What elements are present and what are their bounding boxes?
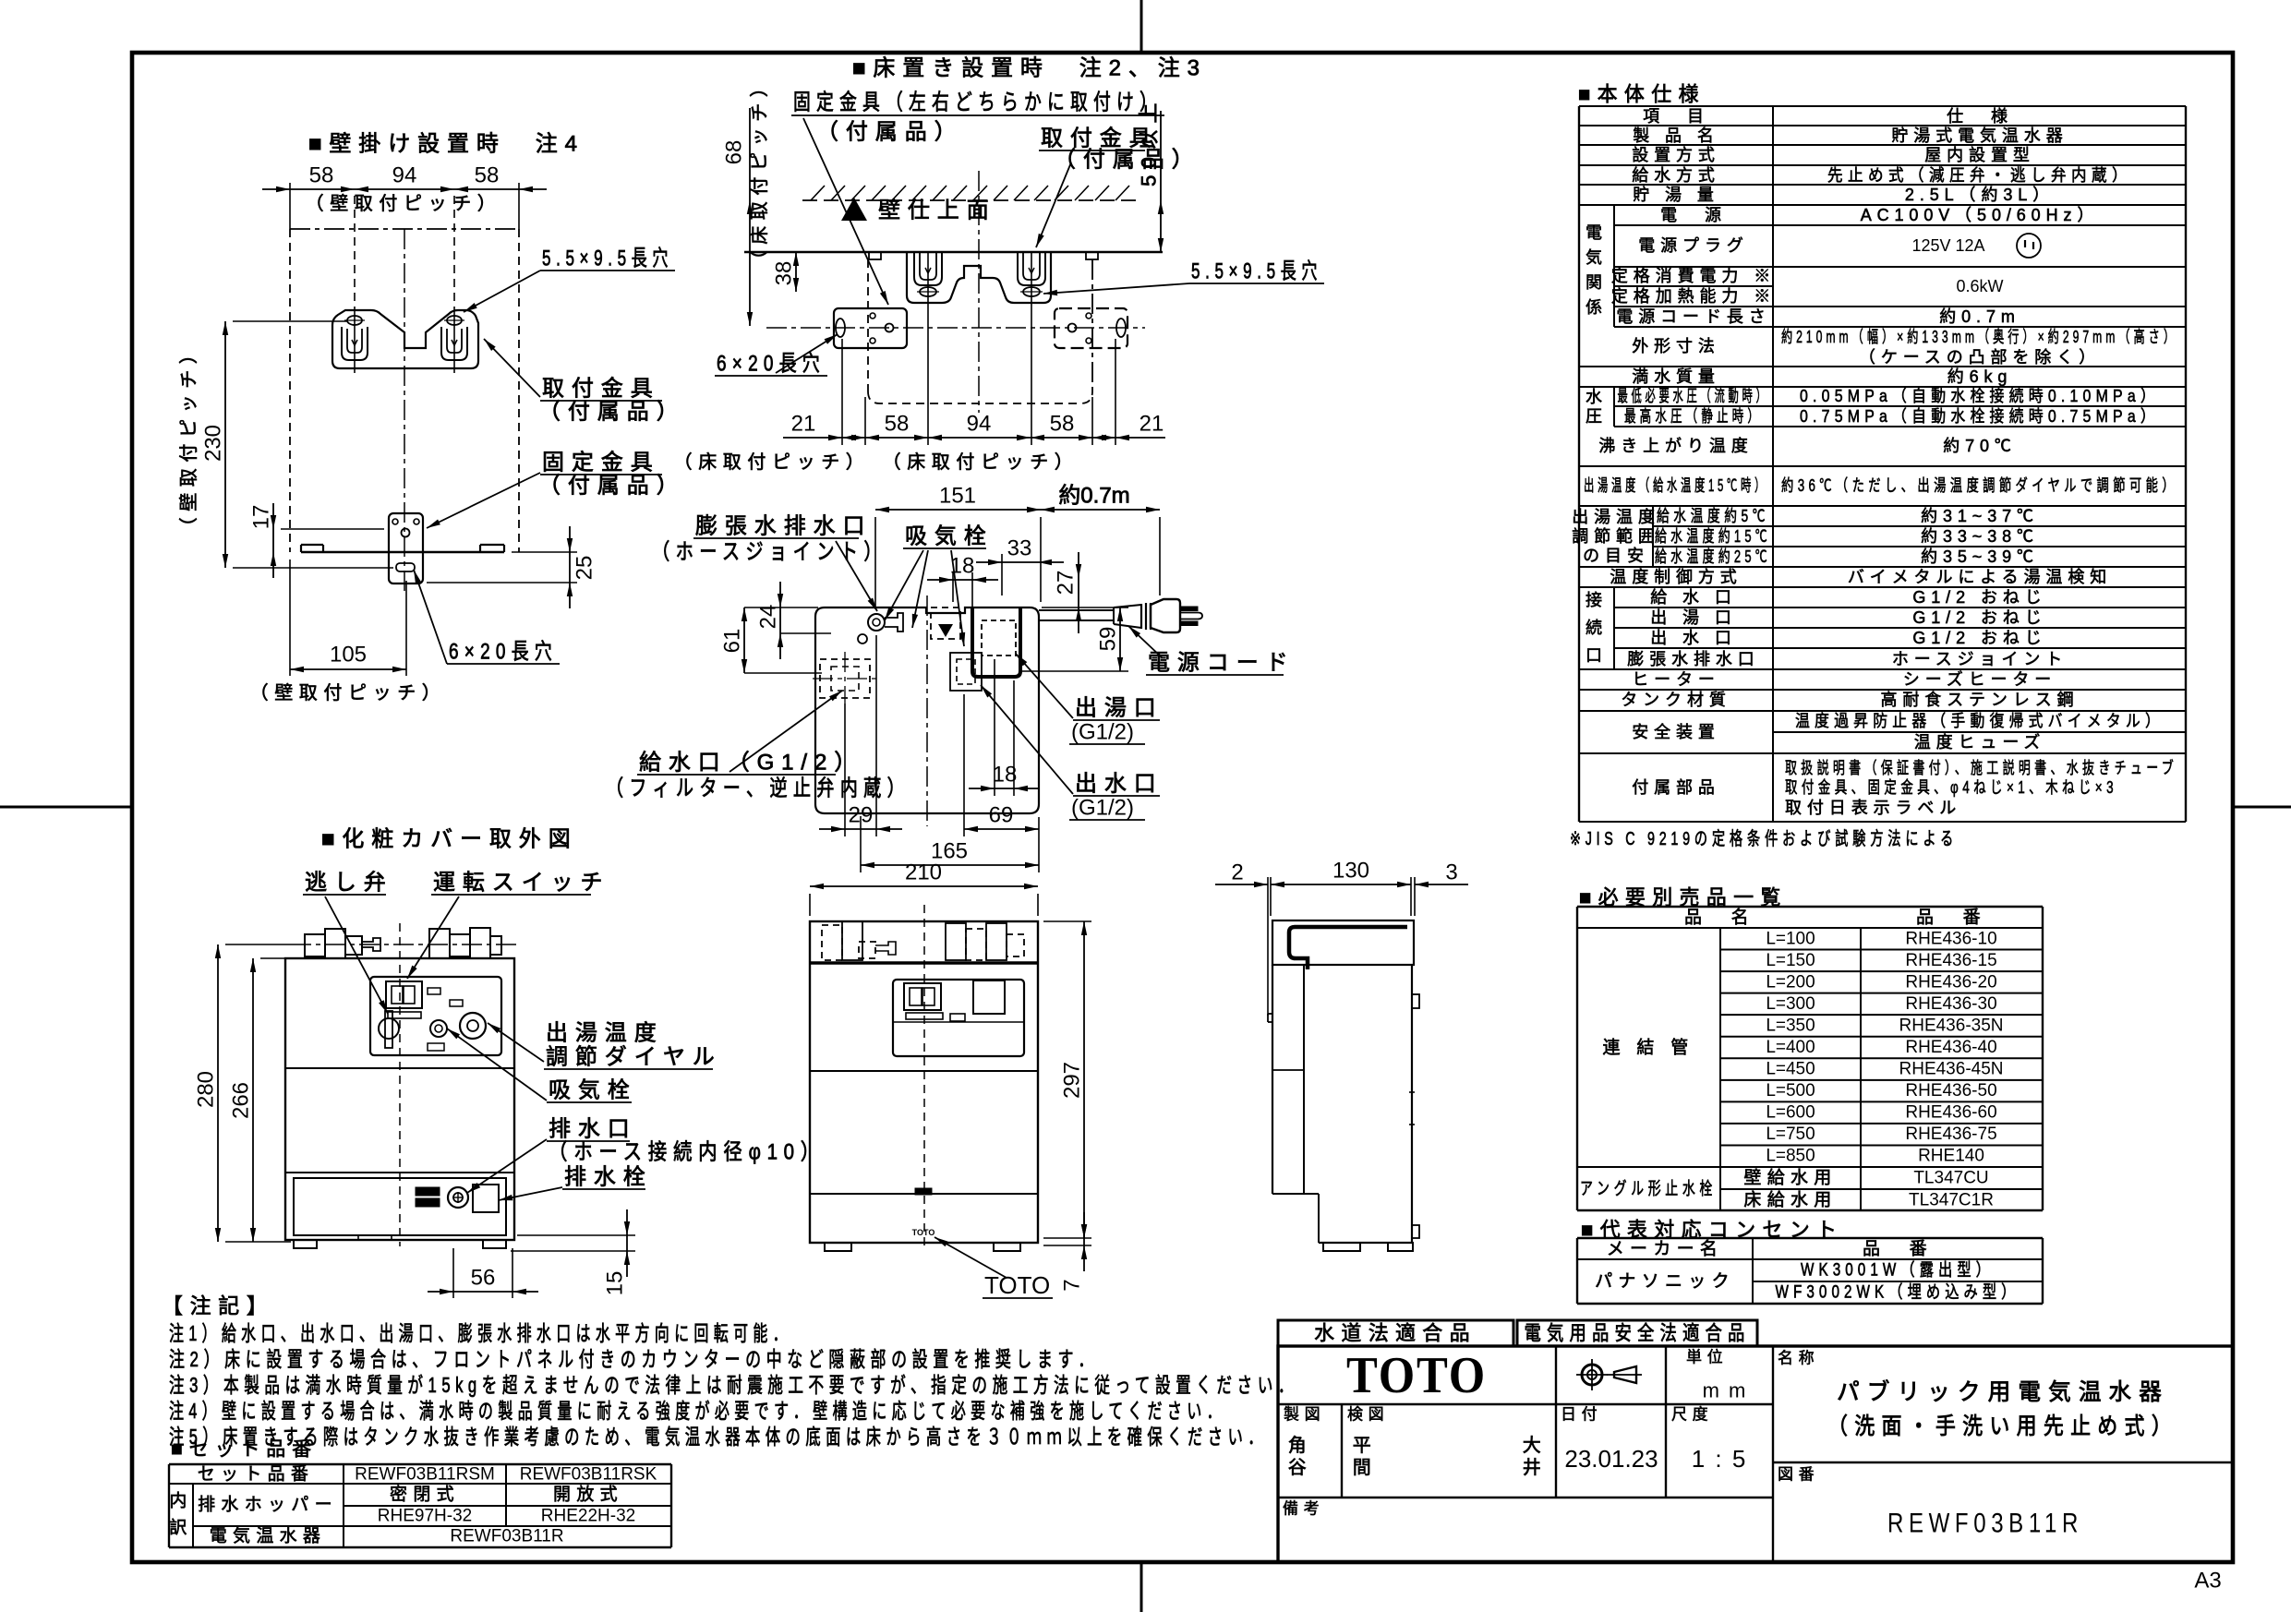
svg-text:水: 水 [1586,388,1608,406]
svg-text:安全装置: 安全装置 [1632,723,1720,741]
svg-text:94: 94 [392,163,417,188]
svg-text:TOTO: TOTO [1346,1347,1487,1404]
svg-text:69: 69 [989,803,1014,828]
svg-text:5.5×9.5長穴: 5.5×9.5長穴 [1191,259,1322,284]
svg-text:屋内設置型: 屋内設置型 [1924,146,2035,164]
svg-text:m m: m m [1703,1379,1748,1402]
svg-text:REWF03B11R: REWF03B11R [450,1527,563,1546]
svg-text:接: 接 [1586,591,1608,609]
svg-text:TL347CU: TL347CU [1913,1169,1988,1188]
svg-text:約6kg: 約6kg [1947,367,2013,386]
svg-text:210: 210 [905,860,942,885]
svg-text:角: 角 [1288,1435,1313,1456]
svg-text:約70℃: 約70℃ [1943,437,2017,455]
svg-text:温度制御方式: 温度制御方式 [1610,568,1742,586]
svg-text:約210mm（幅）×約133mm（奥行）×約297mm（高さ: 約210mm（幅）×約133mm（奥行）×約297mm（高さ） [1781,328,2178,346]
svg-text:（床取付ピッチ）: （床取付ピッチ） [749,73,770,270]
svg-text:仕 様: 仕 様 [1947,107,2013,126]
svg-text:15: 15 [603,1271,628,1296]
svg-text:L=150: L=150 [1766,951,1815,970]
svg-text:給水温度約15℃: 給水温度約15℃ [1655,527,1771,546]
svg-text:電源コード長さ: 電源コード長さ [1616,307,1770,326]
svg-text:RHE436-10: RHE436-10 [1905,929,1996,948]
svg-text:50以上: 50以上 [1138,96,1161,186]
svg-text:(G1/2): (G1/2) [1071,720,1134,745]
svg-text:備考: 備考 [1283,1500,1324,1518]
svg-text:出湯温度: 出湯温度 [1572,508,1660,526]
svg-text:注2）床に設置する場合は、フロントパネル付きのカウンターの中: 注2）床に設置する場合は、フロントパネル付きのカウンターの中など隠蔽部の設置を推… [169,1347,1099,1371]
svg-text:最高水圧（静止時）: 最高水圧（静止時） [1624,407,1763,426]
svg-text:約0.7m: 約0.7m [1939,307,2020,326]
svg-text:電気温水器: 電気温水器 [210,1526,327,1546]
svg-text:開放式: 開放式 [553,1485,623,1505]
svg-text:6×20長穴: 6×20長穴 [449,640,558,665]
svg-text:訳: 訳 [169,1518,192,1538]
svg-text:井: 井 [1523,1457,1548,1478]
svg-text:6×20長穴: 6×20長穴 [717,352,826,377]
svg-text:2.5L（約3L）: 2.5L（約3L） [1905,186,2055,204]
svg-text:出湯温度（給水温度15℃時）: 出湯温度（給水温度15℃時） [1584,476,1768,495]
svg-text:RHE436-60: RHE436-60 [1905,1103,1996,1123]
svg-text:電気用品安全法適合品: 電気用品安全法適合品 [1525,1322,1751,1345]
svg-text:（床取付ピッチ）: （床取付ピッチ） [674,451,871,473]
svg-text:取扱説明書（保証書付）、施工説明書、水抜きチューブ: 取扱説明書（保証書付）、施工説明書、水抜きチューブ [1785,758,2177,777]
svg-text:L=400: L=400 [1766,1038,1815,1057]
svg-text:33: 33 [1007,536,1032,561]
svg-text:日付: 日付 [1561,1406,1602,1424]
svg-text:（付属品）: （付属品） [538,400,686,425]
svg-text:外形寸法: 外形寸法 [1632,337,1720,355]
svg-text:L=600: L=600 [1766,1103,1815,1123]
svg-text:取付日表示ラベル: 取付日表示ラベル [1785,799,1961,817]
svg-text:105: 105 [330,643,367,668]
svg-text:TOTO: TOTO [912,1228,935,1237]
svg-text:続: 続 [1586,619,1608,637]
svg-text:給水温度約25℃: 給水温度約25℃ [1655,547,1771,566]
svg-text:0.75MPa（自動水栓接続時0.75MPa）: 0.75MPa（自動水栓接続時0.75MPa） [1800,407,2160,426]
svg-text:61: 61 [720,629,745,654]
svg-text:アングル形止水栓: アングル形止水栓 [1580,1179,1717,1199]
svg-text:品 番: 品 番 [1863,1239,1933,1259]
svg-text:L=200: L=200 [1766,972,1815,992]
svg-text:RHE436-50: RHE436-50 [1905,1081,1996,1101]
svg-text:L=500: L=500 [1766,1081,1815,1101]
svg-text:吸気栓: 吸気栓 [549,1078,637,1103]
svg-text:検図: 検図 [1347,1406,1389,1424]
svg-text:18: 18 [950,554,975,579]
svg-text:高耐食ステンレス鋼: 高耐食ステンレス鋼 [1880,691,2079,709]
svg-text:運転スイッチ: 運転スイッチ [433,871,609,896]
svg-text:151: 151 [939,484,976,509]
svg-text:（フィルター、逆止弁内蔵）: （フィルター、逆止弁内蔵） [606,776,910,801]
svg-text:温度過昇防止器（手動復帰式バイメタル）: 温度過昇防止器（手動復帰式バイメタル） [1795,712,2164,730]
svg-text:A3: A3 [2194,1569,2221,1594]
svg-text:L=850: L=850 [1766,1147,1815,1166]
svg-text:注3）本製品は満水時質量が15kgを超えませんので法律上は耐: 注3）本製品は満水時質量が15kgを超えませんので法律上は耐震施工不要ですが、指… [169,1373,1298,1397]
svg-text:名称: 名称 [1778,1350,1819,1367]
svg-text:出 湯 口: 出 湯 口 [1650,608,1737,627]
svg-text:130: 130 [1332,859,1369,884]
svg-text:WK3001W（露出型）: WK3001W（露出型） [1801,1260,1995,1281]
svg-text:先止め式（減圧弁・逃し弁内蔵）: 先止め式（減圧弁・逃し弁内蔵） [1827,166,2132,185]
svg-text:排水口: 排水口 [549,1117,637,1142]
svg-text:電源プラグ: 電源プラグ [1638,236,1749,255]
svg-text:2: 2 [1231,860,1243,885]
svg-text:タンク材質: タンク材質 [1621,691,1731,709]
svg-text:L=350: L=350 [1766,1016,1815,1035]
svg-text:（ケースの凸部を除く）: （ケースの凸部を除く） [1859,348,2101,367]
svg-text:18: 18 [993,763,1018,788]
svg-text:電源コード: 電源コード [1148,651,1296,676]
svg-text:G1/2 おねじ: G1/2 おねじ [1912,608,2046,627]
svg-text:大: 大 [1523,1435,1548,1456]
svg-text:セット品番: セット品番 [198,1464,315,1485]
svg-text:約35~39℃: 約35~39℃ [1921,547,2039,566]
svg-text:設置方式: 設置方式 [1632,146,1720,164]
svg-text:排水ホッパー: 排水ホッパー [198,1495,338,1515]
svg-text:21: 21 [1139,412,1164,437]
svg-text:3: 3 [1445,860,1457,885]
svg-text:（付属品）: （付属品） [816,120,964,145]
svg-text:注5）床置きする際はタンク水抜き作業考慮のため、電気温水器本: 注5）床置きする際はタンク水抜き作業考慮のため、電気温水器本体の底面は床から高さ… [169,1425,1268,1449]
svg-text:沸き上がり温度: 沸き上がり温度 [1598,437,1753,455]
svg-text:出 水 口: 出 水 口 [1650,629,1737,647]
svg-text:約31~37℃: 約31~37℃ [1921,507,2039,525]
svg-text:口: 口 [1586,646,1608,665]
svg-text:固定金具（左右どちらかに取付け）: 固定金具（左右どちらかに取付け） [793,90,1163,115]
svg-text:定格加熱能力 ※: 定格加熱能力 ※ [1611,287,1776,306]
svg-text:REWF03B11RSM: REWF03B11RSM [355,1465,495,1485]
svg-text:最低必要水圧（流動時）: 最低必要水圧（流動時） [1618,387,1770,405]
svg-text:ホースジョイント: ホースジョイント [1892,650,2068,668]
svg-text:出湯口: 出湯口 [1075,696,1164,721]
svg-text:シーズヒーター: シーズヒーター [1903,670,2056,689]
svg-text:谷: 谷 [1288,1457,1313,1478]
svg-text:17: 17 [249,505,274,530]
svg-text:定格消費電力 ※: 定格消費電力 ※ [1611,267,1776,285]
svg-text:膨張水排水口: 膨張水排水口 [695,514,872,539]
svg-text:REWF03B11R: REWF03B11R [1887,1509,2083,1539]
svg-text:給水方式: 給水方式 [1632,166,1720,185]
svg-text:68: 68 [722,140,747,165]
svg-text:（壁取付ピッチ）: （壁取付ピッチ） [250,682,447,704]
svg-text:G1/2 おねじ: G1/2 おねじ [1912,629,2046,647]
svg-text:係: 係 [1586,298,1608,317]
svg-text:電 源: 電 源 [1660,206,1727,224]
svg-text:L=100: L=100 [1766,929,1815,948]
svg-text:29: 29 [849,803,874,828]
svg-text:7: 7 [1060,1279,1085,1291]
svg-text:24: 24 [756,605,781,630]
svg-text:品 番: 品 番 [1916,908,1986,928]
svg-text:■セット品番: ■セット品番 [171,1439,318,1461]
svg-text:RHE436-30: RHE436-30 [1905,994,1996,1014]
svg-text:58: 58 [885,412,910,437]
svg-text:貯 湯 量: 貯 湯 量 [1633,186,1719,204]
svg-text:（ホース接続内径φ10）: （ホース接続内径φ10） [549,1140,826,1165]
svg-text:バイメタルによる湯温検知: バイメタルによる湯温検知 [1848,568,2112,586]
svg-text:■床置き設置時 注2、注3: ■床置き設置時 注2、注3 [852,56,1207,81]
svg-text:1 : 5: 1 : 5 [1692,1445,1748,1473]
svg-text:吸気栓: 吸気栓 [905,524,994,549]
svg-text:満水質量: 満水質量 [1632,367,1720,386]
svg-text:RHE436-15: RHE436-15 [1905,951,1996,970]
svg-text:注4）壁に設置する場合は、満水時の製品質量に耐える強度が必要: 注4）壁に設置する場合は、満水時の製品質量に耐える強度が必要です．壁構造に応じて… [169,1399,1226,1423]
svg-text:固定金具: 固定金具 [542,451,660,475]
svg-text:約36℃（ただし、出湯温度調節ダイヤルで調節可能）: 約36℃（ただし、出湯温度調節ダイヤルで調節可能） [1781,476,2178,495]
svg-text:付属部品: 付属部品 [1632,778,1720,797]
svg-text:連 結 管: 連 結 管 [1602,1038,1694,1058]
svg-text:REWF03B11RSK: REWF03B11RSK [520,1465,657,1485]
svg-text:密閉式: 密閉式 [390,1485,460,1505]
svg-text:（付属品）: （付属品） [538,474,686,499]
svg-text:（壁取付ピッチ）: （壁取付ピッチ） [178,340,199,536]
svg-text:取付金具: 取付金具 [542,377,660,402]
svg-text:■必要別売品一覧: ■必要別売品一覧 [1579,886,1788,909]
svg-text:尺度: 尺度 [1671,1406,1713,1424]
svg-text:間: 間 [1353,1458,1378,1478]
svg-text:温度ヒューズ: 温度ヒューズ [1914,733,2046,752]
svg-text:壁給水用: 壁給水用 [1743,1168,1837,1188]
svg-text:21: 21 [791,412,816,437]
svg-text:5.5×9.5長穴: 5.5×9.5長穴 [542,247,673,271]
svg-text:※JIS C 9219の定格条件および試験方法による: ※JIS C 9219の定格条件および試験方法による [1570,828,1958,849]
svg-text:27: 27 [1054,571,1079,595]
svg-text:AC100V（50/60Hz）: AC100V（50/60Hz） [1861,206,2100,224]
svg-text:調節ダイヤル: 調節ダイヤル [546,1045,722,1070]
svg-text:排水栓: 排水栓 [564,1165,653,1190]
svg-text:の目安: の目安 [1583,547,1649,565]
svg-text:（洗面・手洗い用先止め式）: （洗面・手洗い用先止め式） [1827,1413,2178,1439]
svg-text:RHE436-75: RHE436-75 [1905,1125,1996,1144]
svg-text:給水温度約5℃: 給水温度約5℃ [1657,507,1769,525]
svg-text:項 目: 項 目 [1643,107,1709,126]
svg-text:関: 関 [1586,273,1608,292]
svg-text:ヒーター: ヒーター [1632,670,1720,689]
svg-text:給水口（G1/2）: 給水口（G1/2） [639,751,863,776]
svg-text:床給水用: 床給水用 [1743,1190,1837,1210]
svg-text:電: 電 [1586,223,1608,242]
svg-text:単位: 単位 [1686,1349,1728,1366]
svg-text:製図: 製図 [1284,1406,1325,1424]
svg-text:280: 280 [194,1071,219,1108]
svg-text:L=750: L=750 [1766,1125,1815,1144]
svg-text:125V 12A: 125V 12A [1911,236,1984,255]
svg-text:■化粧カバー取外図: ■化粧カバー取外図 [321,827,578,852]
svg-text:貯湯式電気温水器: 貯湯式電気温水器 [1891,126,2068,145]
svg-text:逃し弁: 逃し弁 [305,871,393,896]
svg-text:約33~38℃: 約33~38℃ [1921,527,2039,546]
svg-text:注1）給水口、出水口、出湯口、膨張水排水口は水平方向に回転可: 注1）給水口、出水口、出湯口、膨張水排水口は水平方向に回転可能． [169,1321,792,1345]
svg-text:L=450: L=450 [1766,1060,1815,1079]
svg-text:給 水 口: 給 水 口 [1650,588,1737,607]
svg-text:297: 297 [1060,1062,1085,1099]
svg-text:品 名: 品 名 [1684,908,1754,928]
svg-text:266: 266 [229,1082,254,1119]
svg-text:RHE22H-32: RHE22H-32 [541,1507,635,1526]
svg-text:RHE97H-32: RHE97H-32 [378,1507,472,1526]
svg-text:パブリック用電気温水器: パブリック用電気温水器 [1837,1379,2169,1405]
svg-text:RHE436-45N: RHE436-45N [1899,1060,2004,1079]
svg-text:230: 230 [201,425,226,462]
svg-text:56: 56 [471,1266,496,1291]
svg-text:出湯温度: 出湯温度 [546,1021,664,1046]
svg-text:（付属品）: （付属品） [1054,148,1201,173]
svg-text:0.6kW: 0.6kW [1956,277,2003,295]
svg-text:出水口: 出水口 [1075,772,1164,797]
svg-text:【注記】: 【注記】 [162,1293,274,1317]
svg-text:58: 58 [475,163,500,188]
svg-text:（壁取付ピッチ）: （壁取付ピッチ） [306,193,502,214]
svg-text:L=300: L=300 [1766,994,1815,1014]
svg-text:0.05MPa（自動水栓接続時0.10MPa）: 0.05MPa（自動水栓接続時0.10MPa） [1800,387,2160,405]
svg-text:23.01.23: 23.01.23 [1564,1445,1658,1473]
svg-text:94: 94 [967,412,992,437]
svg-text:約0.7m: 約0.7m [1058,484,1129,509]
svg-text:TL347C1R: TL347C1R [1909,1191,1994,1210]
svg-text:58: 58 [1050,412,1075,437]
svg-text:RHE436-40: RHE436-40 [1905,1038,1996,1057]
svg-text:TOTO: TOTO [984,1271,1050,1299]
svg-text:RHE140: RHE140 [1918,1147,1984,1166]
svg-text:膨張水排水口: 膨張水排水口 [1627,650,1759,668]
svg-text:(G1/2): (G1/2) [1071,796,1134,821]
svg-text:59: 59 [1096,627,1121,652]
svg-text:RHE436-35N: RHE436-35N [1899,1016,2004,1035]
svg-text:■本体仕様: ■本体仕様 [1578,83,1706,106]
svg-text:内: 内 [169,1491,192,1511]
svg-text:製 品 名: 製 品 名 [1633,126,1719,145]
svg-text:WF3002WK（埋め込み型）: WF3002WK（埋め込み型） [1776,1282,2020,1303]
svg-text:調節範囲: 調節範囲 [1572,527,1660,546]
svg-text:■壁掛け設置時 注4: ■壁掛け設置時 注4 [308,132,585,157]
svg-text:RHE436-20: RHE436-20 [1905,972,1996,992]
svg-text:図番: 図番 [1778,1466,1819,1484]
svg-text:G1/2 おねじ: G1/2 おねじ [1912,588,2046,607]
svg-text:取付金具、固定金具、φ4ねじ×1、木ねじ×3: 取付金具、固定金具、φ4ねじ×1、木ねじ×3 [1785,778,2117,797]
svg-text:パナソニック: パナソニック [1595,1271,1735,1292]
svg-text:58: 58 [309,163,334,188]
svg-text:平: 平 [1353,1436,1378,1456]
svg-text:（ホースジョイント）: （ホースジョイント） [652,540,887,565]
svg-text:圧: 圧 [1586,407,1608,426]
svg-text:メーカー名: メーカー名 [1607,1239,1724,1259]
svg-text:38: 38 [772,261,797,286]
svg-text:（床取付ピッチ）: （床取付ピッチ） [883,451,1079,473]
svg-text:25: 25 [573,556,597,581]
svg-text:気: 気 [1586,248,1608,267]
svg-text:水道法適合品: 水道法適合品 [1314,1322,1477,1345]
